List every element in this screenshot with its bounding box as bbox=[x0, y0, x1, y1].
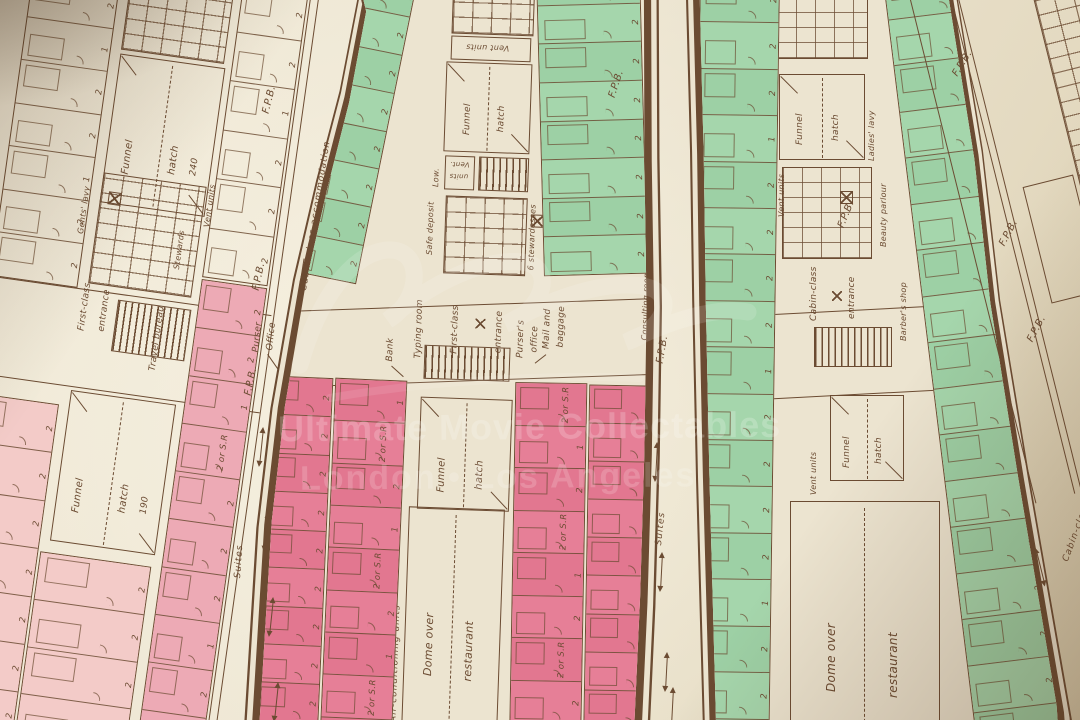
watermark-line1: Ultimate Movie Collectables bbox=[278, 404, 781, 450]
watermark-line2: London • Los Angeles bbox=[300, 456, 697, 498]
deck-plan-photo: Funnel hatch 240 Funnel hatch 190 Vent u… bbox=[0, 0, 1080, 720]
propstore-script-logo bbox=[0, 0, 1080, 720]
watermark: Ultimate Movie Collectables London • Los… bbox=[0, 0, 1080, 720]
